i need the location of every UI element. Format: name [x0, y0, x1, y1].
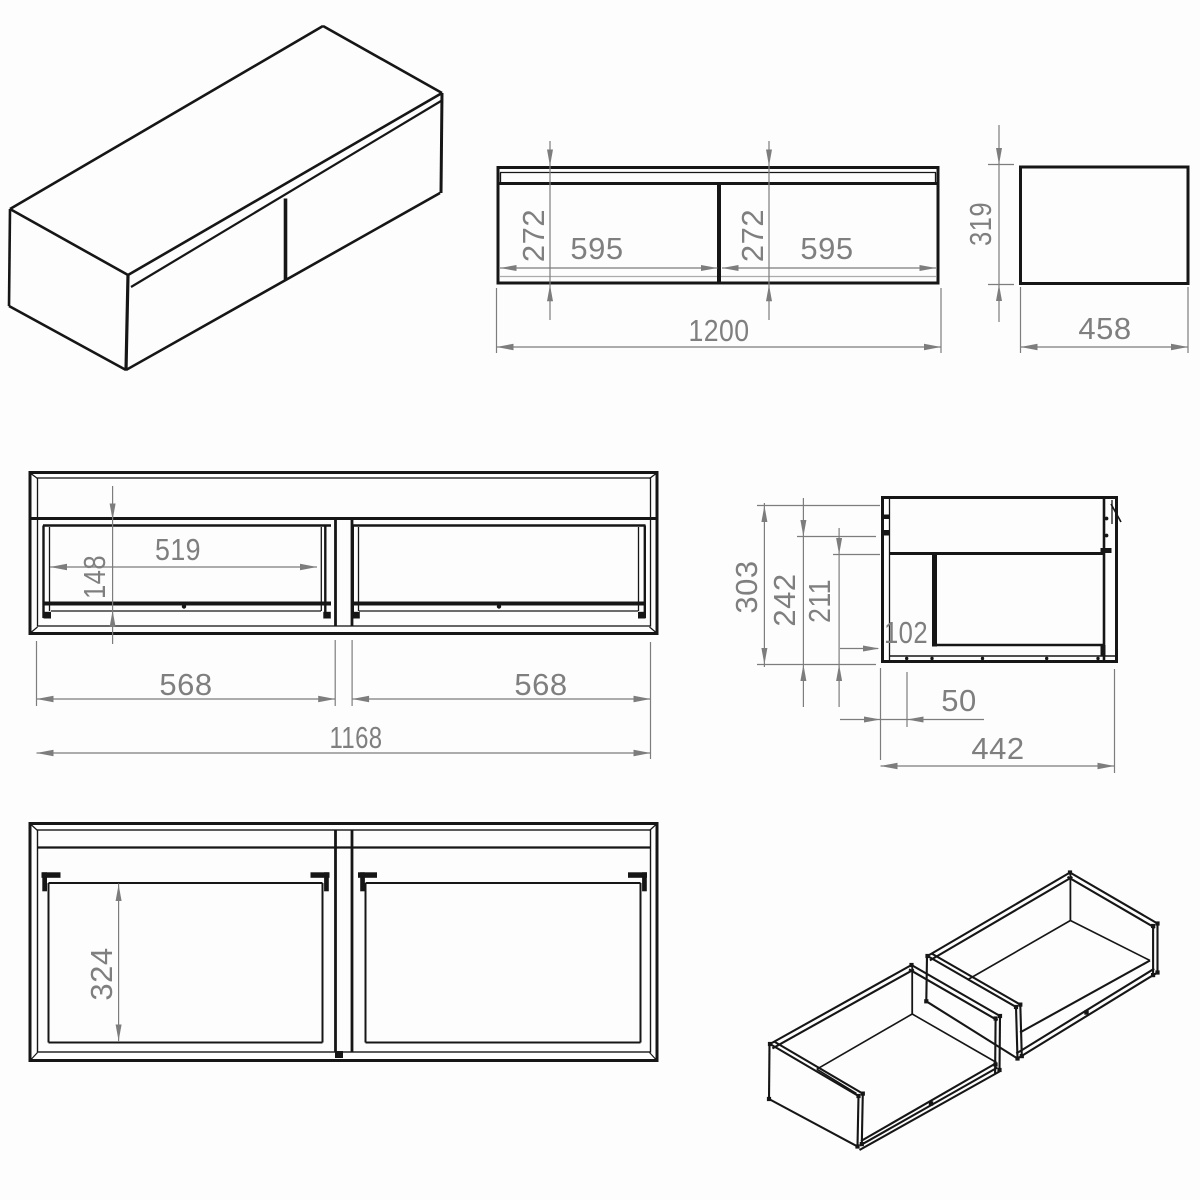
svg-text:458: 458: [1078, 311, 1131, 346]
svg-text:148: 148: [77, 555, 112, 599]
svg-text:242: 242: [767, 573, 802, 626]
svg-text:1200: 1200: [689, 313, 750, 348]
svg-text:102: 102: [884, 615, 928, 650]
svg-text:319: 319: [963, 202, 998, 246]
svg-text:595: 595: [570, 231, 623, 266]
svg-text:595: 595: [800, 231, 853, 266]
svg-text:568: 568: [514, 667, 567, 702]
svg-text:568: 568: [159, 667, 212, 702]
svg-text:442: 442: [971, 731, 1024, 766]
svg-text:272: 272: [516, 209, 551, 262]
svg-text:324: 324: [84, 947, 119, 1000]
svg-text:303: 303: [729, 560, 764, 613]
svg-text:211: 211: [802, 579, 837, 623]
svg-text:50: 50: [941, 683, 976, 718]
svg-text:519: 519: [155, 532, 201, 567]
svg-text:1168: 1168: [330, 720, 383, 755]
svg-text:272: 272: [735, 209, 770, 262]
